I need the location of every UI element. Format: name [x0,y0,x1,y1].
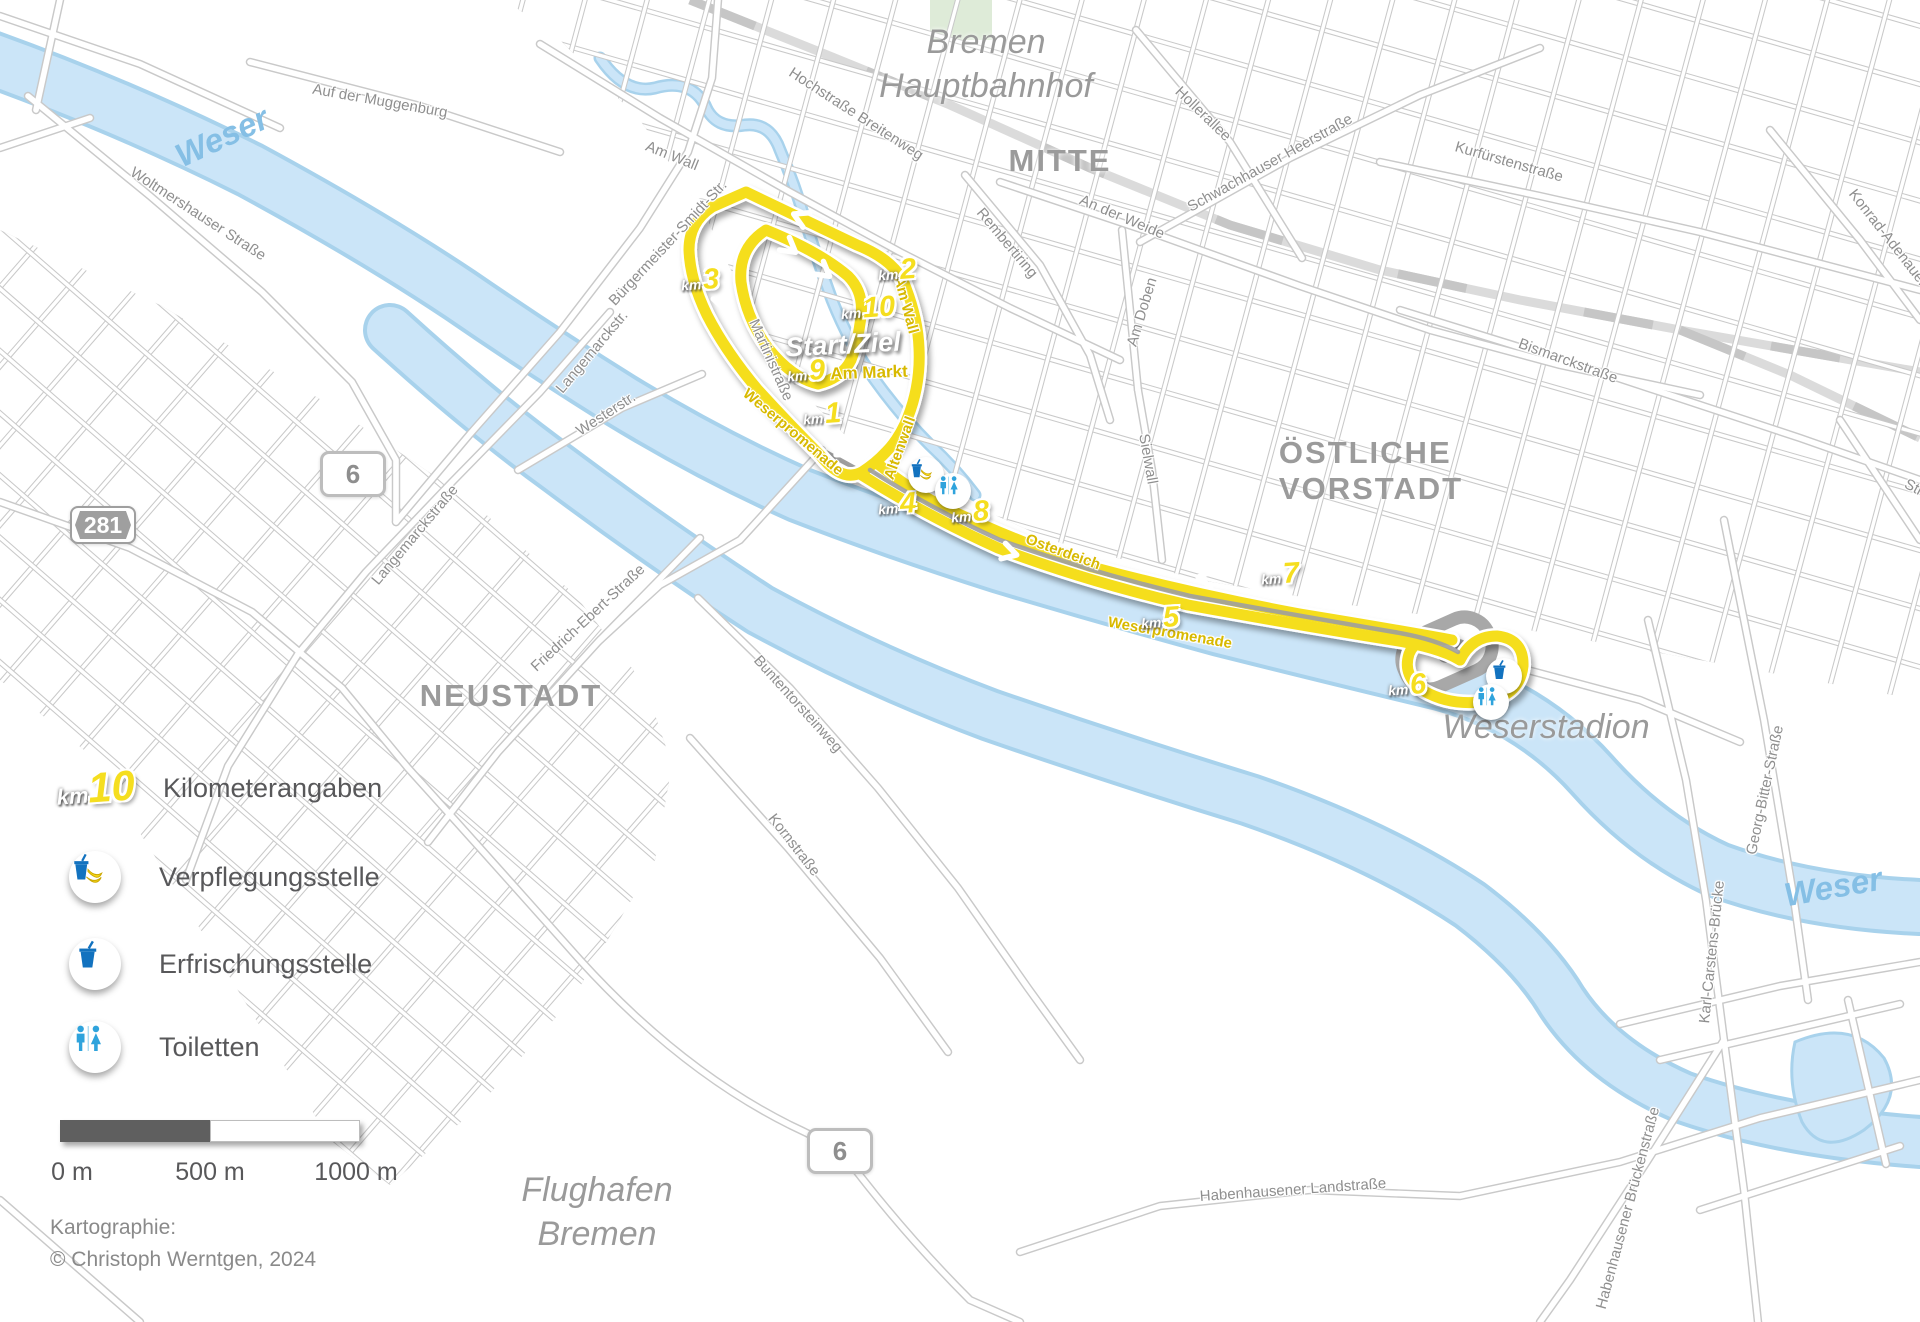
scale-bar-light-half [210,1120,360,1142]
credits-line1: Kartographie: [50,1216,176,1240]
scale-tick-500: 500 m [175,1158,244,1187]
road-shield-b6: 6 [807,1128,873,1174]
road-shield-b6: 6 [320,451,386,497]
scale-bar-dark-half [60,1120,210,1142]
toiletten-icon [935,473,971,509]
credits-line2: © Christoph Werntgen, 2024 [50,1248,316,1272]
toiletten-icon [1473,684,1509,720]
map-stage: km 10 Kilometerangaben Verpflegungsstell… [0,0,1920,1322]
scale-bar [60,1120,360,1142]
scale-tick-0: 0 m [51,1158,93,1187]
scale-tick-1000: 1000 m [314,1158,397,1187]
road-shield-a281: 281 [70,506,136,544]
